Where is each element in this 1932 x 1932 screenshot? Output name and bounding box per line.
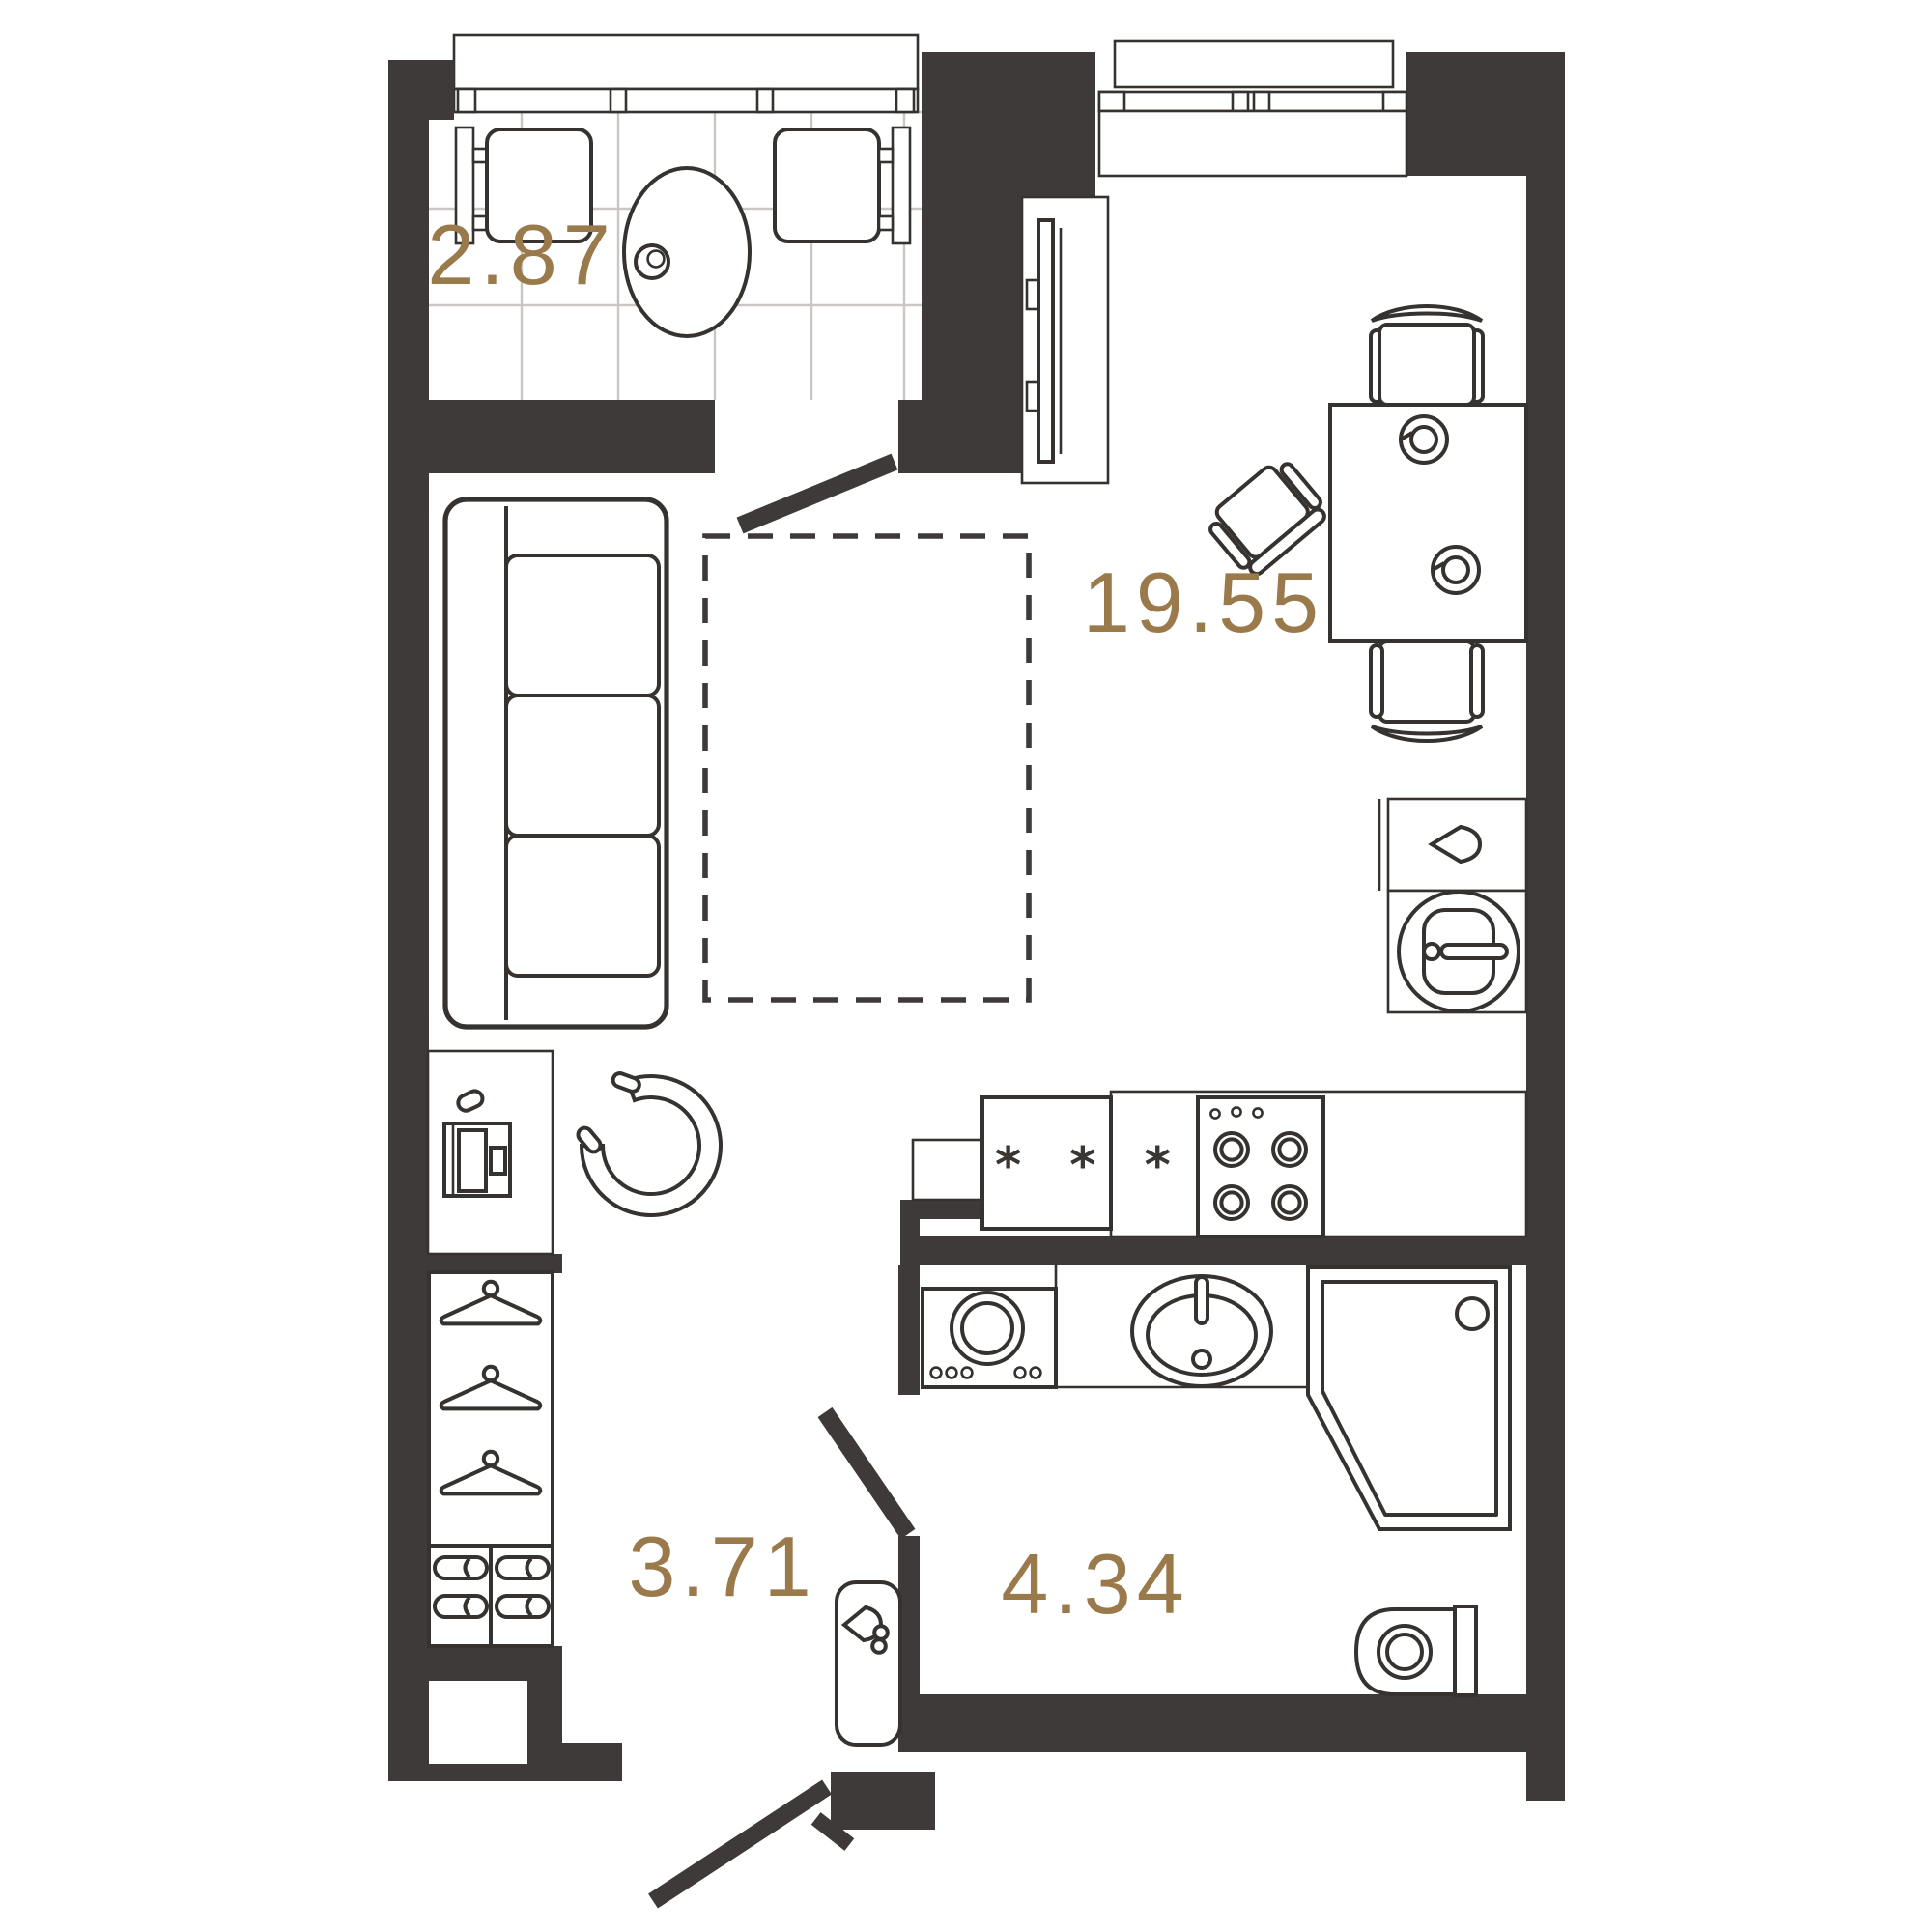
kitchen-sink <box>1399 892 1519 1011</box>
entry-door-leaf <box>653 1787 827 1901</box>
balcony-side-table-right <box>879 128 910 243</box>
cup-icon <box>1433 547 1479 593</box>
fridge-marking: * * * <box>995 1137 1186 1195</box>
dining-chair-bottom <box>1371 641 1483 741</box>
slipper-icon <box>497 1557 549 1578</box>
dining-table <box>1330 405 1526 641</box>
bathroom-sink <box>1056 1265 1308 1387</box>
tv-stand <box>428 1051 553 1254</box>
dining-chair-top <box>1371 306 1483 405</box>
toilet <box>1356 1606 1476 1695</box>
slipper-icon <box>435 1557 487 1578</box>
armchair <box>566 1056 732 1227</box>
water-heater <box>837 1582 900 1745</box>
kitchen-corner-cabinet <box>1379 799 1526 891</box>
floor-plan: * * * <box>0 0 1932 1932</box>
tv <box>1038 220 1053 462</box>
washing-machine <box>923 1289 1056 1387</box>
bathroom-area-label: 4.34 <box>1001 1536 1189 1632</box>
living-room-window <box>1099 41 1406 176</box>
tv-unit <box>1022 197 1108 483</box>
balcony-table <box>624 168 750 336</box>
window-sill <box>1099 111 1406 176</box>
balcony-chair-right <box>775 129 879 241</box>
drain-icon <box>1457 1298 1488 1329</box>
balcony-window <box>454 35 918 112</box>
wardrobe <box>429 1272 553 1646</box>
bed-dashed <box>705 536 1029 1000</box>
stove <box>1198 1097 1323 1236</box>
balcony-area-label: 2.87 <box>427 207 615 302</box>
hallway <box>428 1051 900 1745</box>
shower <box>1308 1267 1510 1529</box>
living-room-area-label: 19.55 <box>1083 554 1324 650</box>
kitchen: * * * <box>913 799 1526 1236</box>
tv <box>444 1123 510 1196</box>
bathroom-door-leaf <box>825 1412 908 1534</box>
cup-icon <box>1401 416 1447 463</box>
sofa <box>445 499 667 1027</box>
faucet-icon <box>1196 1277 1207 1323</box>
kitchen-sink-cabinet <box>1388 891 1526 1012</box>
floor-plan-svg: * * * <box>0 0 1932 1932</box>
balcony-door-leaf <box>740 462 895 526</box>
hallway-area-label: 3.71 <box>628 1519 816 1614</box>
kitchen-cabinet-small <box>913 1140 982 1200</box>
slipper-icon <box>435 1596 487 1617</box>
slipper-icon <box>497 1596 549 1617</box>
